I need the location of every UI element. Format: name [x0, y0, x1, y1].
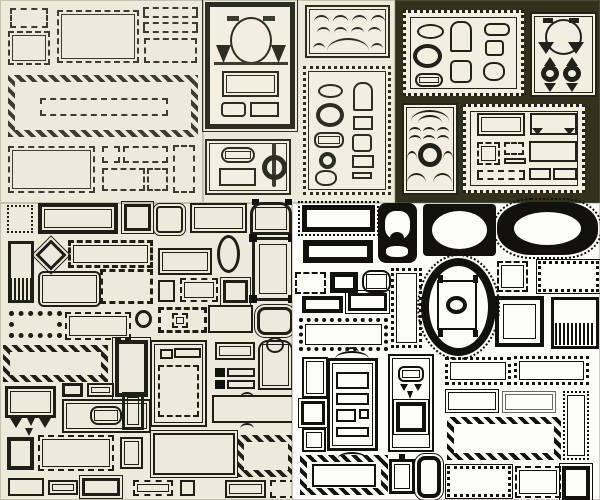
flourish-ornament — [314, 15, 329, 22]
leaf-ornament — [240, 392, 254, 398]
flourish-ornament — [437, 135, 449, 140]
post-ornament — [438, 330, 443, 337]
flourish-ornament — [371, 15, 385, 22]
ornate-rect-frame — [348, 293, 387, 311]
small-rect-frame — [87, 383, 114, 397]
wavy-square-frame — [8, 31, 50, 65]
flourish-ornament — [317, 27, 330, 33]
vintage-frame-collage — [0, 0, 600, 500]
ornate-square-frame — [124, 204, 151, 231]
ornate-scroll-frame — [237, 435, 295, 477]
stamp-rect-frame — [180, 278, 218, 302]
capital-ornament — [263, 16, 275, 21]
bracket-corner-frame — [153, 433, 235, 475]
small-rect-frame — [353, 116, 373, 130]
small-rect-frame — [174, 348, 201, 358]
ornate-square-frame — [562, 466, 590, 500]
flourish-ornament — [423, 127, 435, 132]
flourish-ornament — [409, 127, 421, 132]
ornate-swirl-frame — [257, 307, 293, 335]
ornate-tall-frame — [115, 340, 148, 397]
post-ornament — [473, 330, 478, 337]
ornate-tall-frame — [417, 456, 441, 498]
small-rect-frame — [219, 168, 256, 186]
flourish-ornament — [352, 15, 367, 22]
inner-rect-frame — [336, 372, 369, 389]
wavy-rect-frame — [144, 38, 197, 63]
post-ornament — [285, 199, 292, 205]
circle-frame — [135, 310, 152, 328]
floral-corner-frame — [212, 395, 297, 423]
thick-square-frame — [495, 296, 544, 347]
rounded-square-frame — [485, 40, 504, 56]
slim-bar-frame — [352, 172, 372, 179]
ring-frame — [413, 44, 442, 68]
badge-frame — [314, 132, 344, 148]
rect-frame — [158, 248, 212, 275]
ornate-rect-frame — [82, 478, 120, 496]
rect-frame — [225, 480, 266, 498]
scallop-rect-frame — [445, 357, 511, 385]
small-tall-frame — [120, 437, 143, 469]
bar-frame — [227, 380, 255, 389]
thin-rect-frame — [48, 480, 78, 495]
stamp-square-frame — [497, 261, 528, 292]
dotted-tall-frame — [563, 391, 589, 460]
oval-portrait-frame — [230, 17, 272, 64]
rounded-label-frame — [221, 102, 246, 117]
badge-frame — [221, 147, 255, 163]
frame-opening — [432, 211, 487, 249]
post-ornament — [438, 275, 443, 283]
stamp-rect-frame — [133, 480, 173, 496]
slim-bar-frame — [504, 158, 526, 164]
rect-frame — [302, 357, 328, 398]
rect-frame — [208, 305, 253, 333]
circle-frame — [266, 337, 284, 353]
grand-leafy-frame — [447, 417, 561, 460]
flourish-ornament — [333, 15, 348, 22]
label-rect-frame — [250, 102, 279, 117]
stamp-square-frame — [477, 142, 500, 165]
tombstone-frame — [250, 202, 292, 235]
capital-ornament — [543, 18, 553, 23]
ornate-square-frame — [156, 206, 183, 233]
stamp-rect-frame — [38, 435, 114, 471]
finial-ornament — [399, 454, 405, 459]
crown-ornament — [345, 347, 359, 353]
wavy-bar-frame — [143, 7, 198, 18]
badge-frame — [90, 406, 122, 425]
flourish-ornament — [409, 135, 421, 140]
console-frame — [5, 386, 56, 418]
flourish-ornament — [423, 135, 435, 140]
rect-frame — [190, 203, 247, 233]
tombstone-frame — [353, 82, 373, 111]
stamp-square-frame — [172, 313, 188, 328]
small-rect-frame — [62, 383, 83, 397]
wavy-bar-frame — [143, 22, 198, 33]
badge-frame — [398, 366, 424, 382]
post-ornament — [252, 199, 259, 205]
ring-frame — [319, 152, 336, 169]
ornate-square-frame — [301, 401, 325, 425]
thin-rect-frame — [8, 478, 44, 496]
leaf-ornament — [240, 423, 254, 429]
slim-rect-frame — [215, 342, 255, 360]
small-rect-frame — [352, 155, 374, 168]
double-rect-frame — [445, 389, 499, 413]
double-rect-frame — [502, 391, 556, 413]
thick-black-frame — [302, 205, 375, 232]
wavy-square-frame — [102, 146, 120, 163]
oval-frame — [217, 235, 240, 273]
wavy-rect-frame — [57, 10, 139, 63]
lace-rect-frame — [538, 261, 599, 292]
thick-black-frame — [303, 240, 373, 263]
bar-frame — [227, 368, 255, 377]
flourish-ornament — [313, 43, 325, 49]
inner-rect-frame — [312, 464, 376, 487]
wavy-rect-frame — [123, 146, 168, 163]
small-rect-frame — [553, 168, 577, 180]
stamp-rect-frame — [65, 312, 131, 340]
ring-frame — [541, 65, 559, 82]
wavy-rect-frame — [102, 168, 145, 191]
striped-panel — [10, 278, 32, 301]
post-ornament — [249, 234, 257, 242]
wavy-rect-frame — [68, 240, 153, 268]
badge-frame — [484, 23, 510, 36]
frame-opening — [386, 246, 408, 257]
scallop-rect-frame — [514, 356, 589, 385]
thick-square-frame — [330, 272, 358, 293]
tiny-square-frame — [180, 480, 195, 496]
small-rect-frame — [529, 168, 551, 180]
rounded-rect-frame — [38, 271, 101, 307]
wreath-ornament — [418, 143, 442, 167]
banner-inner-rect — [40, 98, 168, 116]
capital-ornament — [569, 18, 579, 23]
rect-frame — [302, 428, 326, 452]
finial-frame — [389, 459, 415, 494]
stamp-square-frame — [295, 272, 326, 294]
ruffle-rect-frame — [9, 311, 62, 338]
lace-tall-frame — [391, 268, 422, 348]
inner-rect-frame — [336, 393, 369, 405]
wavy-bar-frame — [477, 170, 525, 180]
pedestal-shelf — [214, 62, 288, 65]
inner-rect-frame — [359, 409, 369, 419]
wavy-rect-frame — [8, 146, 95, 193]
thick-small-frame — [7, 437, 34, 470]
rounded-square-frame — [352, 134, 372, 152]
wavy-tall-frame — [173, 145, 195, 193]
post-ornament — [249, 295, 257, 303]
wreath-silhouette — [390, 232, 404, 244]
tombstone-frame — [450, 21, 472, 52]
small-rect-frame — [160, 349, 173, 359]
frame-opening — [514, 212, 581, 245]
wavy-rect-frame — [100, 269, 153, 304]
flourish-ornament — [351, 27, 364, 33]
wavy-rect-frame — [158, 365, 199, 417]
stamp-rect-frame — [515, 466, 561, 498]
octagon-frame — [362, 270, 391, 293]
ring-frame — [563, 65, 581, 82]
flourish-ornament — [371, 43, 383, 49]
dotted-tall-frame — [7, 205, 33, 233]
ornate-square-frame — [223, 280, 248, 303]
label-rect-frame — [222, 71, 279, 97]
wreath-ornament — [262, 155, 287, 180]
flourish-ornament — [368, 27, 381, 33]
chain-border-frame — [299, 318, 388, 351]
small-square-frame — [158, 280, 175, 302]
ornate-square-frame — [396, 402, 426, 432]
scaffold-frame — [252, 237, 294, 301]
striped-panel — [555, 323, 595, 345]
wreath-ornament — [446, 296, 467, 314]
block-ornament — [215, 380, 225, 389]
inner-rect-frame — [336, 427, 369, 437]
lace-rect-frame — [447, 466, 511, 497]
thick-rect-frame — [38, 203, 118, 234]
wavy-rect-frame — [504, 142, 524, 155]
rect-frame — [529, 141, 577, 162]
clover-frame — [483, 62, 505, 81]
badge-frame — [415, 73, 443, 87]
ring-frame — [316, 103, 344, 127]
inner-rect-frame — [336, 409, 356, 422]
oval-label-frame — [417, 24, 444, 39]
capital-ornament — [227, 16, 239, 21]
oval-label-frame — [318, 84, 343, 98]
rounded-rect-frame — [450, 60, 472, 83]
flourish-ornament — [437, 127, 449, 132]
wavy-square-frame — [147, 168, 168, 191]
post-ornament — [473, 275, 478, 283]
block-ornament — [215, 368, 225, 377]
thick-rect-frame — [302, 296, 343, 313]
rect-frame — [477, 113, 525, 136]
grand-scroll-banner — [3, 345, 108, 382]
flourish-ornament — [334, 27, 347, 33]
wavy-rect-frame — [10, 8, 48, 28]
clover-frame — [315, 170, 337, 186]
